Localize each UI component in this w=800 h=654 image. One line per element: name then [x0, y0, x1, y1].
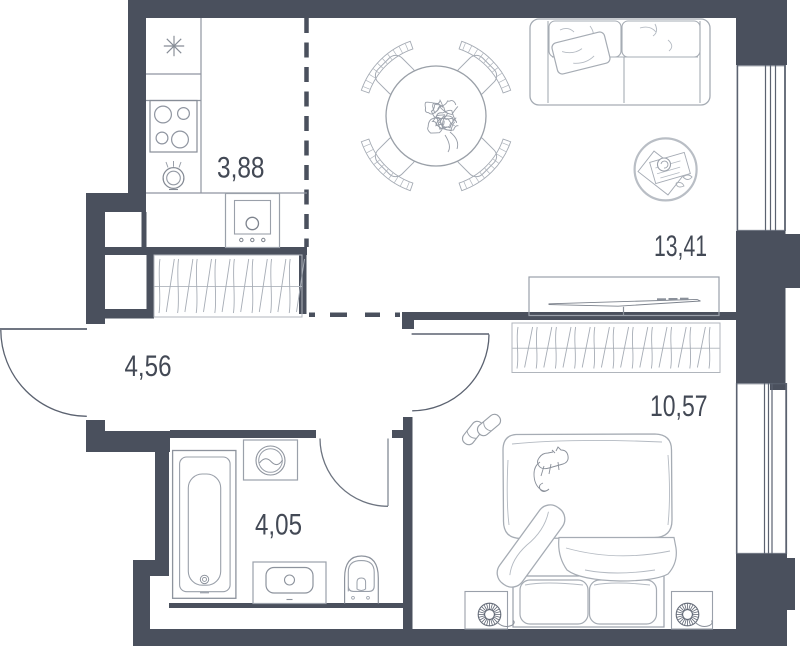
svg-text:4,56: 4,56	[125, 350, 172, 383]
svg-text:13,41: 13,41	[654, 230, 707, 263]
svg-text:4,05: 4,05	[255, 509, 302, 542]
svg-text:10,57: 10,57	[650, 390, 708, 423]
svg-text:3,88: 3,88	[217, 152, 265, 185]
